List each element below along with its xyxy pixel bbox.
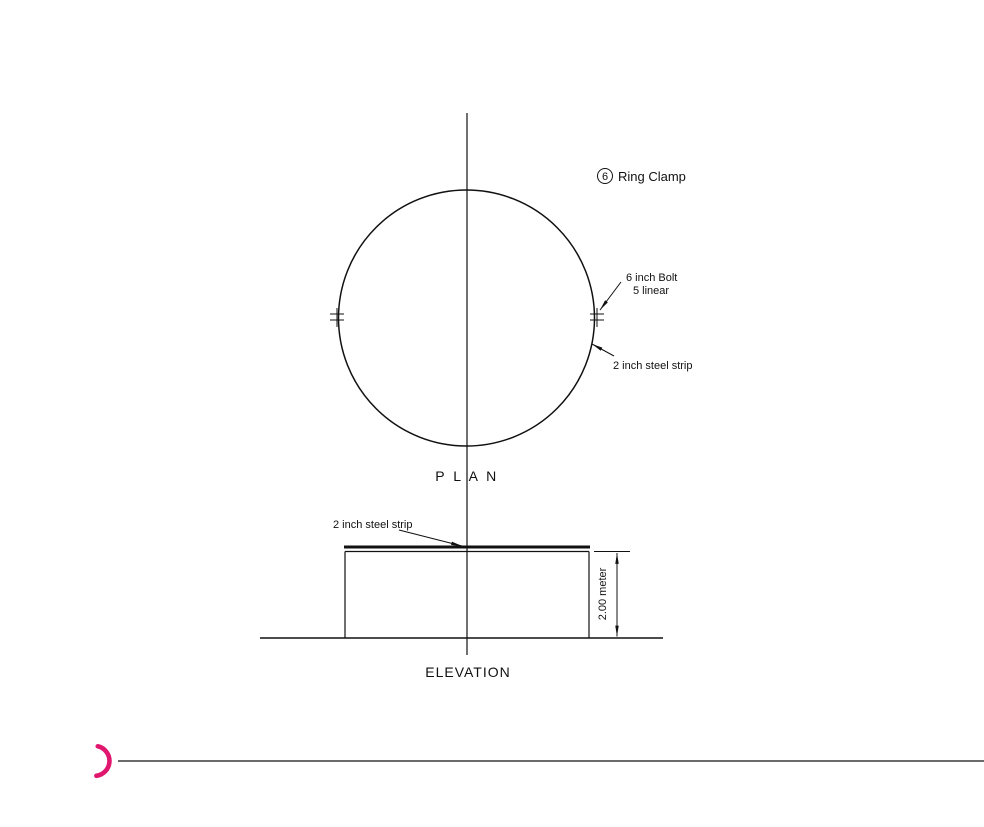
callout: 6 Ring Clamp xyxy=(598,169,686,185)
callout-number: 6 xyxy=(602,171,608,183)
callout-label: Ring Clamp xyxy=(618,169,686,184)
elevation-strip-label: 2 inch steel strip xyxy=(333,519,412,531)
height-dimension-text: 2.00 meter xyxy=(597,567,609,620)
elevation-strip-leader-line xyxy=(399,530,462,546)
elevation-steel-strip-bar xyxy=(344,546,590,549)
brand-arc-mark xyxy=(96,746,109,776)
drawing-canvas: 6 Ring Clamp 6 inch Bolt 5 linear 2 inch… xyxy=(0,0,984,827)
plan-strip-leader-line xyxy=(592,344,614,356)
elevation-view-title: ELEVATION xyxy=(425,664,511,680)
plan-view-title: P L A N xyxy=(435,468,498,484)
bolt-symbol-left xyxy=(330,308,344,327)
bolt-leader-line xyxy=(600,282,621,310)
plan-view: 6 Ring Clamp 6 inch Bolt 5 linear 2 inch… xyxy=(330,113,692,655)
footer xyxy=(96,746,984,776)
bolt-label-group: 6 inch Bolt 5 linear xyxy=(600,272,677,310)
technical-drawing: 6 Ring Clamp 6 inch Bolt 5 linear 2 inch… xyxy=(0,0,984,827)
elevation-strip-label-group: 2 inch steel strip xyxy=(333,519,462,546)
plan-strip-label-group: 2 inch steel strip xyxy=(592,344,692,372)
plan-strip-label: 2 inch steel strip xyxy=(613,360,692,372)
bolt-label-line2: 5 linear xyxy=(633,285,669,297)
elevation-view: 2 inch steel strip 2.00 meter ELEVATION xyxy=(260,519,663,680)
height-dimension-group: 2.00 meter xyxy=(594,552,630,637)
bolt-symbol-right xyxy=(590,308,604,327)
bolt-label-line1: 6 inch Bolt xyxy=(626,272,677,284)
